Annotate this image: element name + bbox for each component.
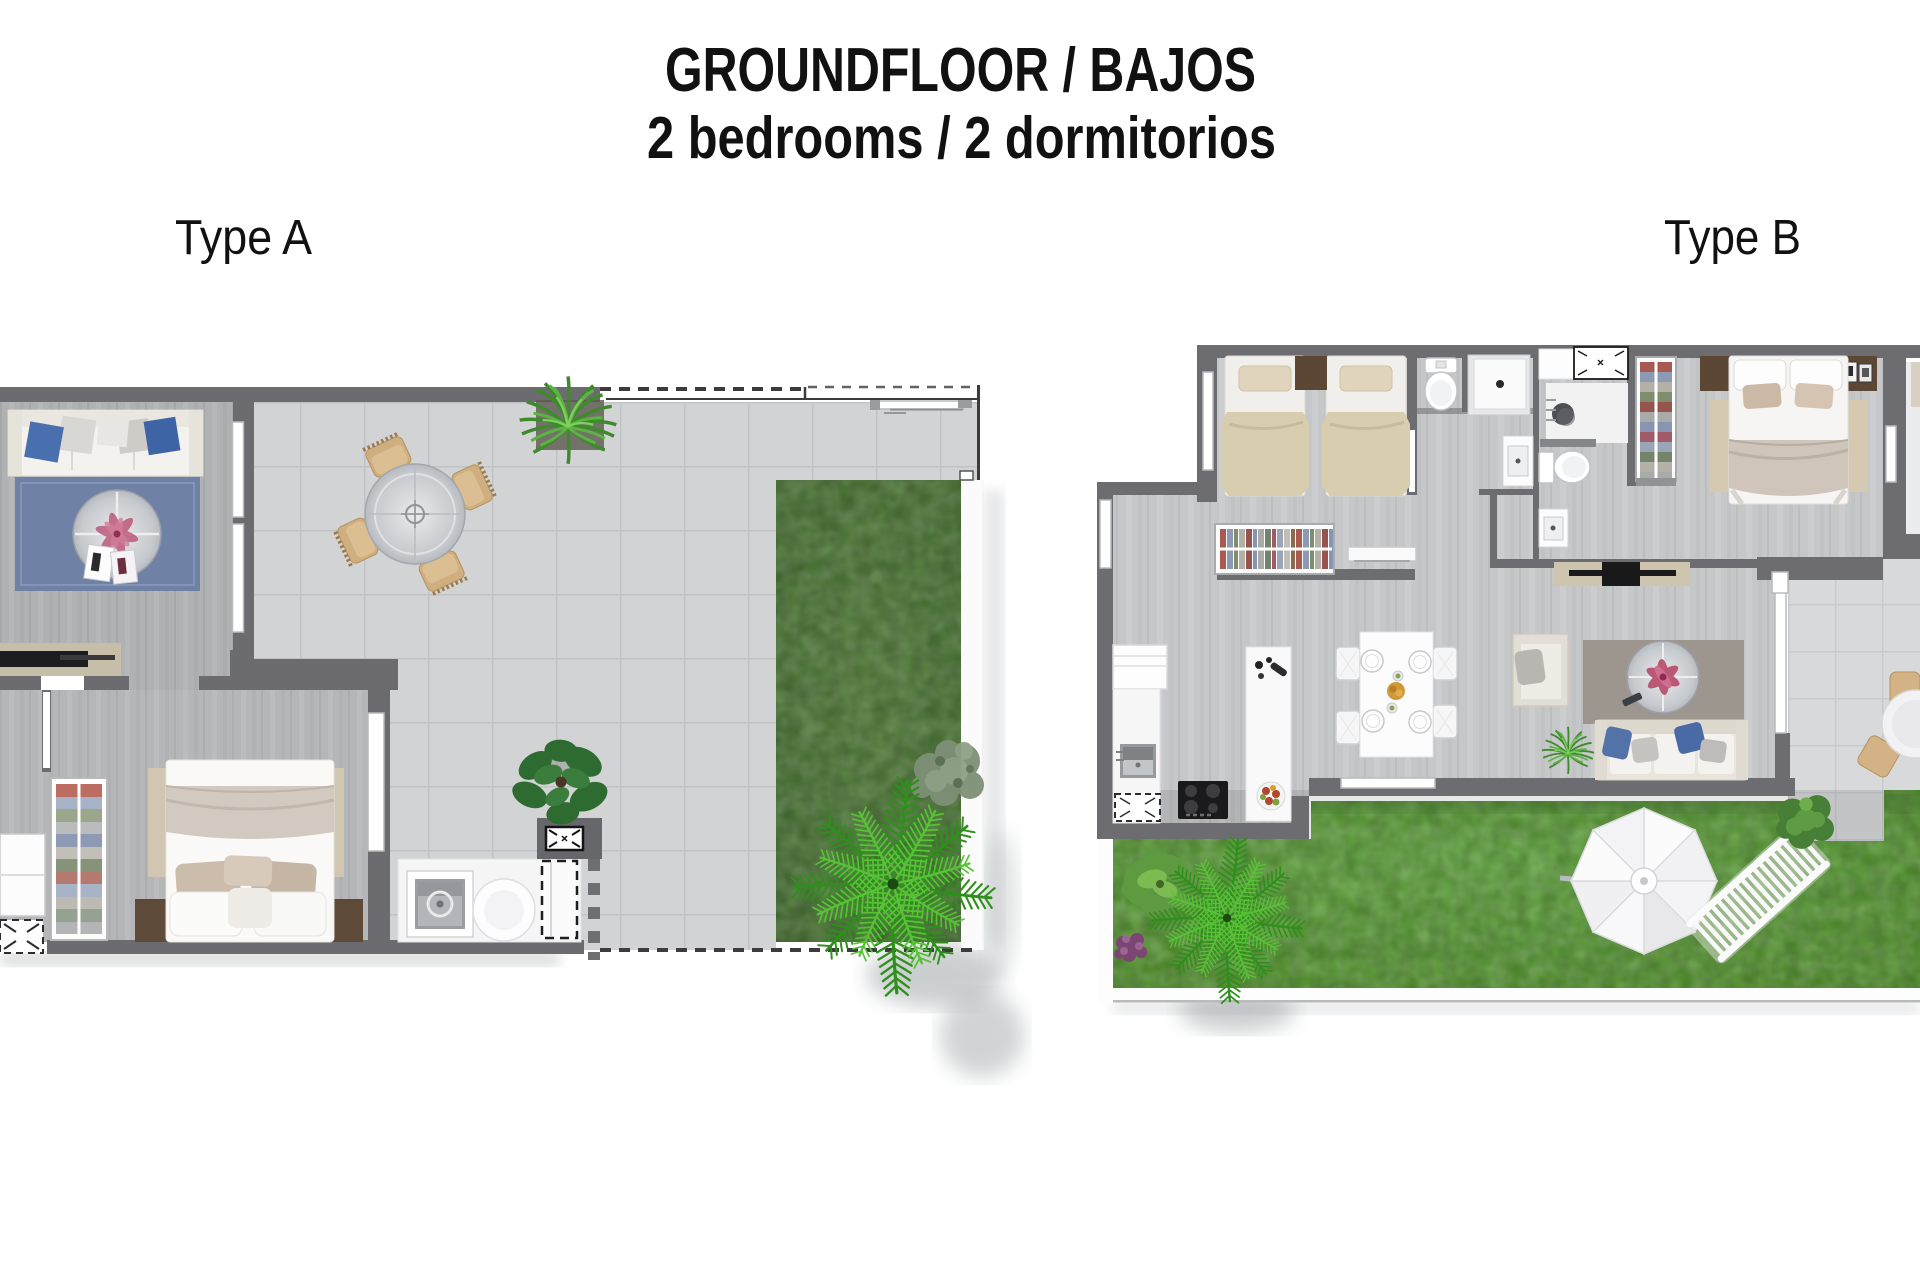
svg-text:Type A: Type A	[175, 211, 312, 265]
svg-text:GROUNDFLOOR / BAJOS: GROUNDFLOOR / BAJOS	[665, 36, 1256, 105]
svg-text:2 bedrooms / 2 dormitorios: 2 bedrooms / 2 dormitorios	[647, 105, 1276, 171]
svg-text:Type B: Type B	[1664, 211, 1801, 265]
